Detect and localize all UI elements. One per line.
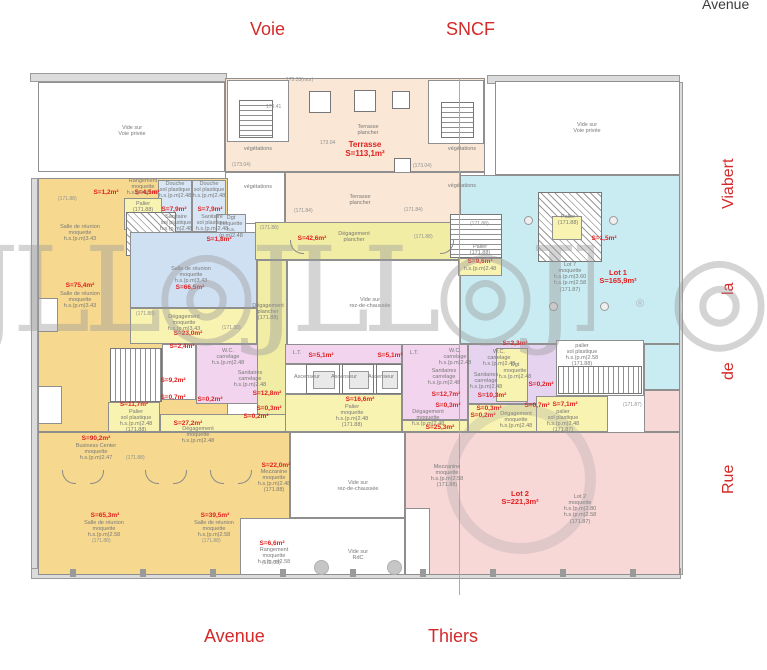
street-label-la: la [720,275,738,295]
column-dot [609,216,618,225]
left-wall-room [38,386,62,424]
street-label-thiers: Thiers [428,626,478,647]
skylight [392,91,410,109]
wall-column [280,569,286,577]
room-palier-166 [285,394,402,432]
sanitary-left-cluster [196,344,258,404]
street-label-de: de [720,358,738,380]
street-label-voie: Voie [250,19,285,40]
void-room-top-left [38,82,225,172]
column-dot [600,302,609,311]
wall-top-left [30,73,227,82]
terrace-stair-right [441,102,474,138]
stair-right-treads [558,366,642,394]
elevation-label: (171.87) [623,403,642,409]
stair-lot1-edge [450,214,502,258]
zone-lot2-ext [644,390,680,432]
elevator-3 [376,364,402,394]
lot2-notch [405,508,430,575]
street-label-sncf: SNCF [446,19,495,40]
skylight [309,91,331,113]
room-white-mid [162,344,196,400]
wall-column [490,569,496,577]
stair-mid-left [110,348,162,402]
void-lower [290,432,405,518]
elevator-2 [342,364,374,394]
room-dgt-right [496,348,528,402]
void-room-top-right [495,81,680,175]
column-round [314,560,329,575]
room-palier-lot1 [552,216,582,240]
room-meeting-blue [130,232,257,308]
wall-column [420,569,426,577]
zone-lot2 [405,432,680,575]
room-palier-96 [458,258,502,276]
column-dot [524,216,533,225]
corridor-top [255,222,460,260]
street-label-rue: Rue [720,452,738,494]
street-label-avenue-bottom: Avenue [204,626,265,647]
boundary-line [459,78,460,595]
column-round [387,560,402,575]
room-degagement-272 [160,414,290,432]
wall-column [140,569,146,577]
sanitary-above-lifts [285,344,402,364]
corridor-left-arm [257,260,287,432]
room-palier-71 [536,396,608,432]
wall-left [31,178,38,575]
room-degagement-23 [130,308,257,344]
wall-column [210,569,216,577]
wall-column [350,569,356,577]
wall-column [560,569,566,577]
street-label-viabert: Viabert [720,143,738,209]
column-dot [549,302,558,311]
street-label-avenue-top: Avenue [702,0,749,12]
left-wall-room [38,298,58,332]
wall-column [70,569,76,577]
zone-lot1-ext [644,344,680,390]
floor-plan-page: Voie SNCF Avenue Avenue Thiers Viabert l… [0,0,767,670]
elevator-1 [306,364,340,394]
wall-column [630,569,636,577]
room-palier-117 [108,402,160,432]
skylight [354,90,376,112]
terrace-stair-left [239,100,273,138]
terrace-strip [285,172,460,224]
